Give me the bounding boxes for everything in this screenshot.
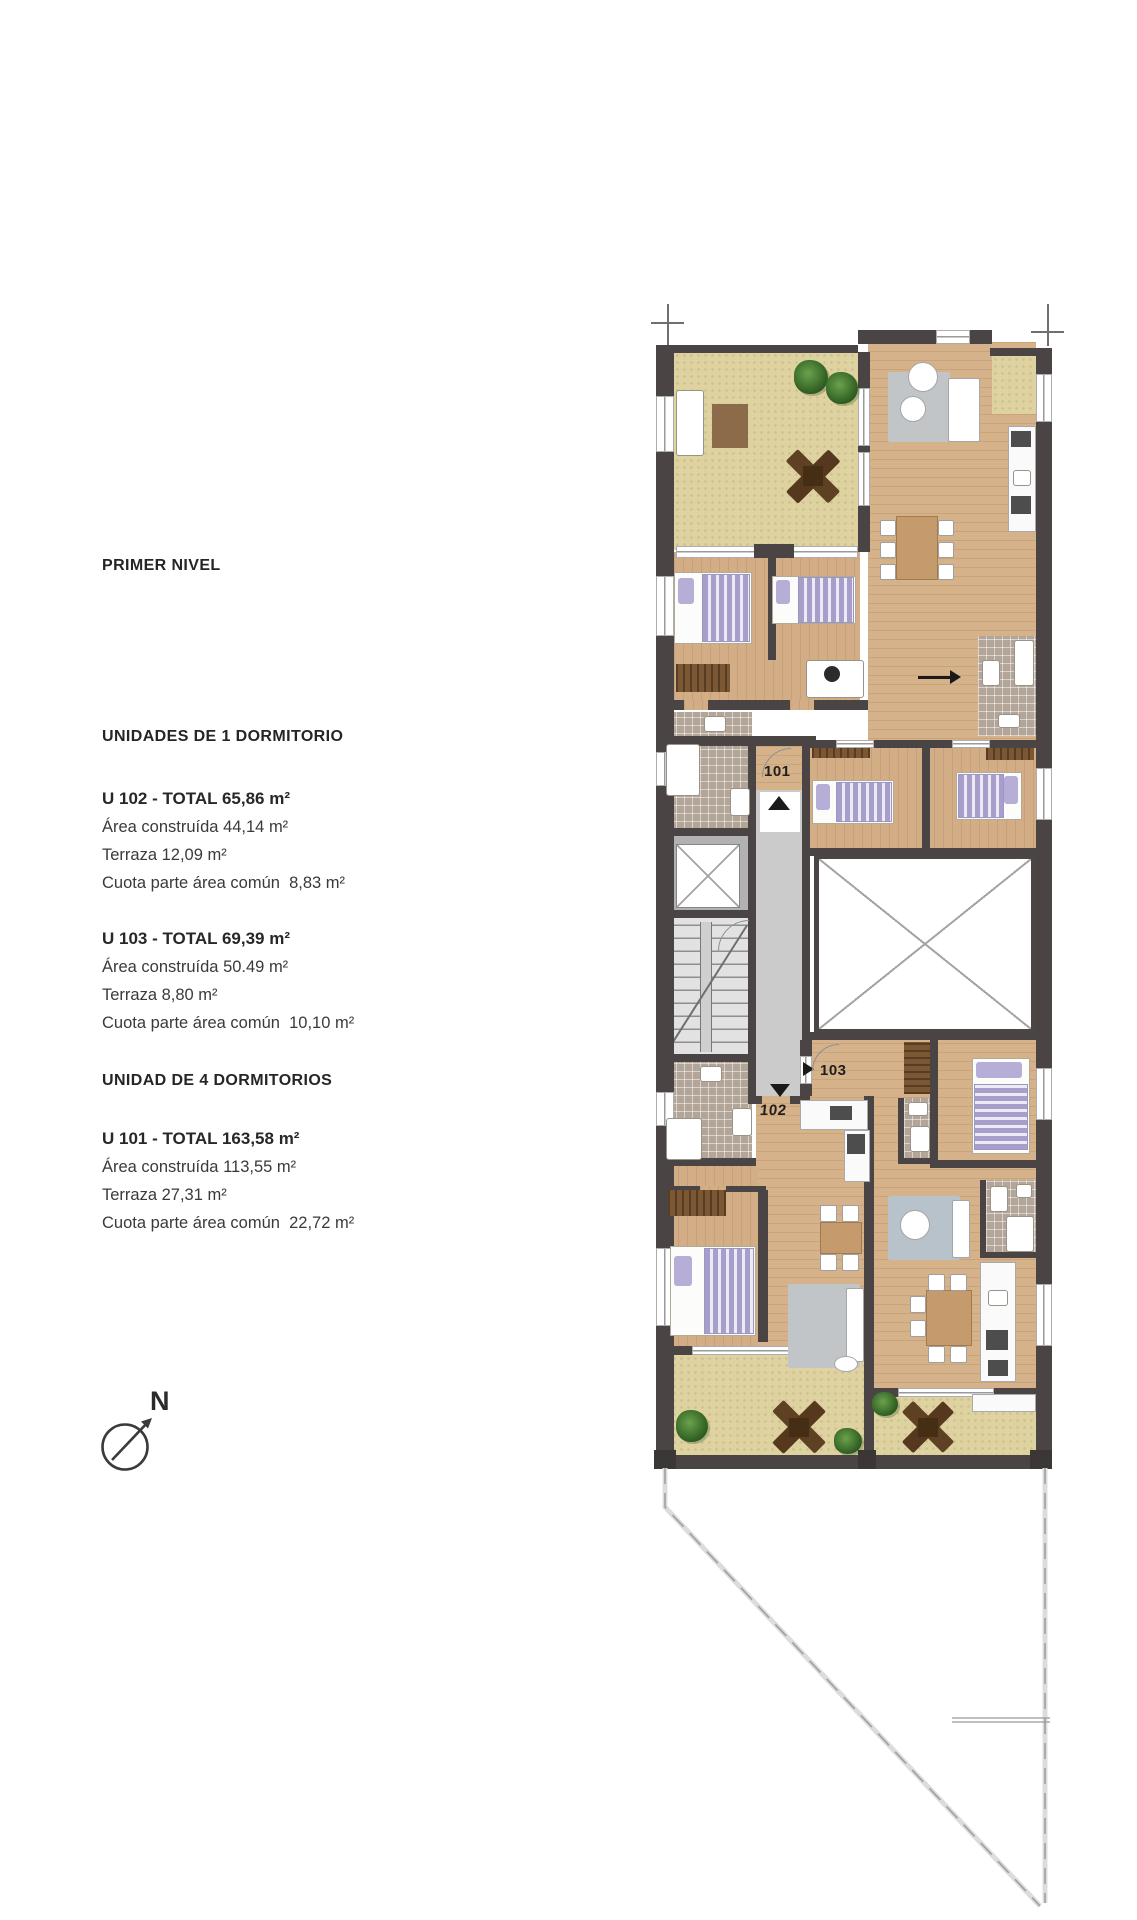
armchair <box>908 362 938 392</box>
terrace-floor-small <box>992 356 1036 414</box>
wardrobe <box>904 1042 930 1094</box>
closet <box>812 748 870 758</box>
wall <box>930 1040 938 1166</box>
toilet <box>732 1108 752 1136</box>
wall <box>802 745 810 1040</box>
outdoor-table-set <box>772 1402 826 1452</box>
entry-arrow-102 <box>770 1084 790 1097</box>
plant <box>834 1428 862 1454</box>
survey-cross-icon <box>651 322 684 324</box>
outdoor-table-set <box>902 1402 954 1452</box>
north-label: N <box>150 1386 170 1417</box>
unit-label-102: 102 <box>759 1102 787 1119</box>
patio-void <box>814 854 1036 1034</box>
sink <box>700 1066 722 1082</box>
window <box>656 396 674 452</box>
outdoor-table-set <box>786 450 840 502</box>
sofa <box>846 1288 864 1362</box>
window <box>1036 374 1052 422</box>
unit-title-u103: U 103 - TOTAL 69,39 m² <box>102 925 482 953</box>
unit-line: Terraza 27,31 m² <box>102 1181 482 1209</box>
dresser <box>676 664 730 692</box>
wall <box>808 848 1036 856</box>
window <box>1036 1068 1052 1120</box>
wall <box>656 910 756 918</box>
wall <box>922 748 930 852</box>
door-opening <box>790 700 814 710</box>
chair <box>880 542 896 558</box>
bed-pillow <box>816 784 830 810</box>
wall <box>930 1160 1042 1168</box>
chair <box>880 564 896 580</box>
lot-boundary-lines <box>650 1460 1060 1915</box>
sink <box>704 716 726 732</box>
bathtub <box>666 744 700 796</box>
ottoman <box>834 1356 858 1372</box>
door-opening <box>684 700 708 710</box>
chair <box>938 520 954 536</box>
bed-blanket <box>958 774 1004 818</box>
bed-pillow <box>674 1256 692 1286</box>
entry-arrow-101 <box>768 796 790 810</box>
bed-blanket <box>704 1248 754 1334</box>
lounge-chair <box>676 390 704 456</box>
dining-table <box>896 516 938 580</box>
shower <box>1006 1216 1034 1252</box>
coffee-table <box>900 1210 930 1240</box>
chair <box>820 1205 837 1222</box>
plant <box>676 1410 708 1442</box>
toilet <box>990 1186 1008 1212</box>
wall <box>990 348 1038 356</box>
unit-line: Terraza 12,09 m² <box>102 841 482 869</box>
bed-blanket <box>702 574 750 642</box>
survey-cross-icon <box>1047 304 1049 346</box>
window <box>1036 768 1052 820</box>
unit-line: Área construída 113,55 m² <box>102 1153 482 1181</box>
stove <box>986 1330 1008 1350</box>
bathtub <box>1014 640 1034 686</box>
plant <box>794 360 828 394</box>
unit-title-u102: U 102 - TOTAL 65,86 m² <box>102 785 482 813</box>
floor-plan-sheet: PRIMER NIVEL UNIDADES DE 1 DORMITORIO U … <box>0 0 1137 1920</box>
direction-arrow-head <box>950 670 961 684</box>
chair <box>928 1274 945 1291</box>
bed-blanket <box>798 577 854 623</box>
chair <box>820 1254 837 1271</box>
dining-table <box>820 1222 862 1254</box>
coffee-table <box>900 396 926 422</box>
chair <box>910 1296 926 1313</box>
unit-line: Cuota parte área común 10,10 m² <box>102 1009 482 1037</box>
wall <box>674 345 858 353</box>
desk-chair <box>824 666 840 682</box>
wall <box>656 1054 756 1062</box>
unit-title-u101: U 101 - TOTAL 163,58 m² <box>102 1125 482 1153</box>
kitchen-sink <box>1013 470 1031 486</box>
unit-line: Área construída 50.49 m² <box>102 953 482 981</box>
dining-table <box>926 1290 972 1346</box>
sofa <box>952 1200 970 1258</box>
wall <box>980 1180 986 1258</box>
closet <box>986 748 1034 760</box>
unit-line: Cuota parte área común 22,72 m² <box>102 1209 482 1237</box>
stove <box>847 1134 865 1154</box>
window <box>836 740 874 748</box>
plant <box>872 1392 898 1416</box>
chair <box>842 1254 859 1271</box>
plant <box>826 372 858 404</box>
wall <box>898 1098 904 1164</box>
outdoor-mat <box>712 404 748 448</box>
section-header-one-bedroom: UNIDADES DE 1 DORMITORIO <box>102 728 343 746</box>
toilet <box>910 1126 930 1152</box>
toilet <box>982 660 1000 686</box>
kitchen-sink <box>830 1106 852 1120</box>
fridge <box>1011 431 1031 447</box>
fridge <box>988 1360 1008 1376</box>
elevator-cab <box>676 844 740 908</box>
sink <box>1016 1184 1032 1198</box>
bed-pillow <box>678 578 694 604</box>
chair <box>910 1320 926 1337</box>
chair <box>928 1346 945 1363</box>
wall <box>656 828 756 836</box>
chair <box>950 1346 967 1363</box>
chair <box>880 520 896 536</box>
window <box>936 330 970 344</box>
wall <box>858 330 992 344</box>
sofa <box>948 378 980 442</box>
bathtub <box>666 1118 702 1160</box>
unit-block-u103: U 103 - TOTAL 69,39 m² Área construída 5… <box>102 925 482 1037</box>
direction-arrow <box>918 676 952 679</box>
wall <box>980 1252 1036 1258</box>
stove <box>1011 496 1031 514</box>
chair <box>842 1205 859 1222</box>
page-title: PRIMER NIVEL <box>102 557 221 575</box>
wall <box>758 1190 768 1342</box>
bed-blanket <box>836 782 892 822</box>
corridor-floor <box>756 790 802 1096</box>
wall <box>808 1032 1036 1040</box>
unit-block-u102: U 102 - TOTAL 65,86 m² Área construída 4… <box>102 785 482 897</box>
dresser <box>668 1190 726 1216</box>
bed-pillow <box>976 1062 1022 1078</box>
unit-line: Cuota parte área común 8,83 m² <box>102 869 482 897</box>
unit-block-u101: U 101 - TOTAL 163,58 m² Área construída … <box>102 1125 482 1237</box>
wall <box>898 1158 938 1164</box>
window <box>858 452 870 506</box>
window <box>858 388 870 446</box>
chair <box>938 564 954 580</box>
survey-cross-icon <box>1031 331 1064 333</box>
toilet <box>730 788 750 816</box>
section-header-four-bedroom: UNIDAD DE 4 DORMITORIOS <box>102 1072 332 1090</box>
window <box>656 576 674 636</box>
bed-pillow <box>776 580 790 604</box>
unit-line: Terraza 8,80 m² <box>102 981 482 1009</box>
chair <box>950 1274 967 1291</box>
unit-line: Área construída 44,14 m² <box>102 813 482 841</box>
kitchen-sink <box>988 1290 1008 1306</box>
window <box>952 740 990 748</box>
survey-cross-icon <box>667 304 669 346</box>
planter-bench <box>972 1394 1036 1412</box>
window <box>1036 1284 1052 1346</box>
bed-pillow <box>1004 776 1018 804</box>
chair <box>938 542 954 558</box>
bed-blanket <box>974 1084 1028 1150</box>
sink <box>908 1102 928 1116</box>
sink <box>998 714 1020 728</box>
